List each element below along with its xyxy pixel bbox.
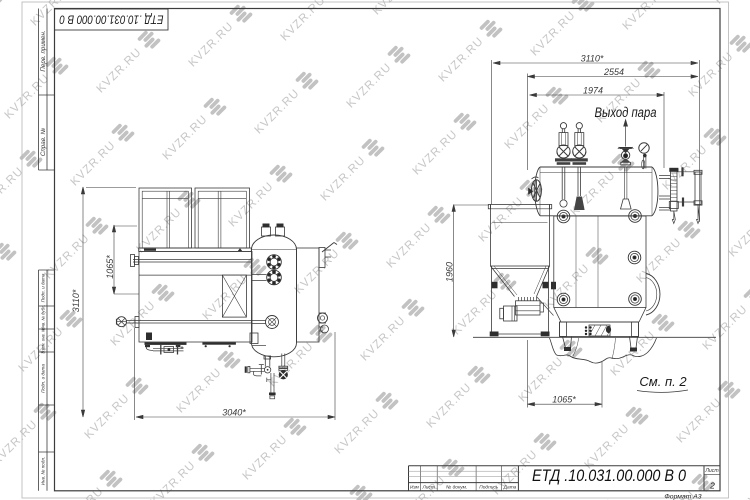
svg-text:Изм: Изм bbox=[410, 484, 420, 490]
svg-text:Лист: Лист bbox=[704, 468, 719, 474]
svg-text:Справ. №: Справ. № bbox=[40, 128, 47, 156]
svg-text:1065*: 1065* bbox=[552, 394, 576, 404]
svg-text:Инв. № дубл.: Инв. № дубл. bbox=[41, 305, 46, 331]
svg-text:Дата: Дата bbox=[503, 484, 517, 490]
svg-text:Взам. инв. №: Взам. инв. № bbox=[41, 327, 46, 353]
svg-text:2554: 2554 bbox=[603, 67, 624, 77]
svg-text:2: 2 bbox=[709, 481, 715, 491]
svg-text:Формат А3: Формат А3 bbox=[664, 493, 701, 500]
svg-text:Инв. № подл.: Инв. № подл. bbox=[41, 457, 46, 486]
svg-text:1065*: 1065* bbox=[105, 255, 115, 279]
svg-text:ЕТД .10.031.00.000 В 0: ЕТД .10.031.00.000 В 0 bbox=[532, 466, 686, 485]
svg-text:Подп. и дата: Подп. и дата bbox=[41, 364, 46, 393]
svg-text:Выход пара: Выход пара bbox=[595, 105, 657, 120]
svg-text:3110*: 3110* bbox=[71, 289, 81, 312]
svg-text:1974: 1974 bbox=[583, 85, 603, 95]
svg-text:3110*: 3110* bbox=[581, 53, 604, 63]
svg-text:Лист: Лист bbox=[422, 484, 435, 490]
svg-text:№ докум.: № докум. bbox=[446, 484, 467, 490]
svg-text:Перв. примен.: Перв. примен. bbox=[40, 30, 47, 71]
svg-text:Подп. и дата: Подп. и дата bbox=[41, 273, 46, 302]
svg-text:См. п. 2: См. п. 2 bbox=[639, 374, 687, 389]
svg-text:ЕТД .10.031.00.000 В 0: ЕТД .10.031.00.000 В 0 bbox=[59, 13, 164, 25]
svg-text:1960: 1960 bbox=[444, 262, 454, 282]
svg-text:3040*: 3040* bbox=[222, 407, 246, 417]
svg-text:Подпись: Подпись bbox=[479, 484, 499, 490]
